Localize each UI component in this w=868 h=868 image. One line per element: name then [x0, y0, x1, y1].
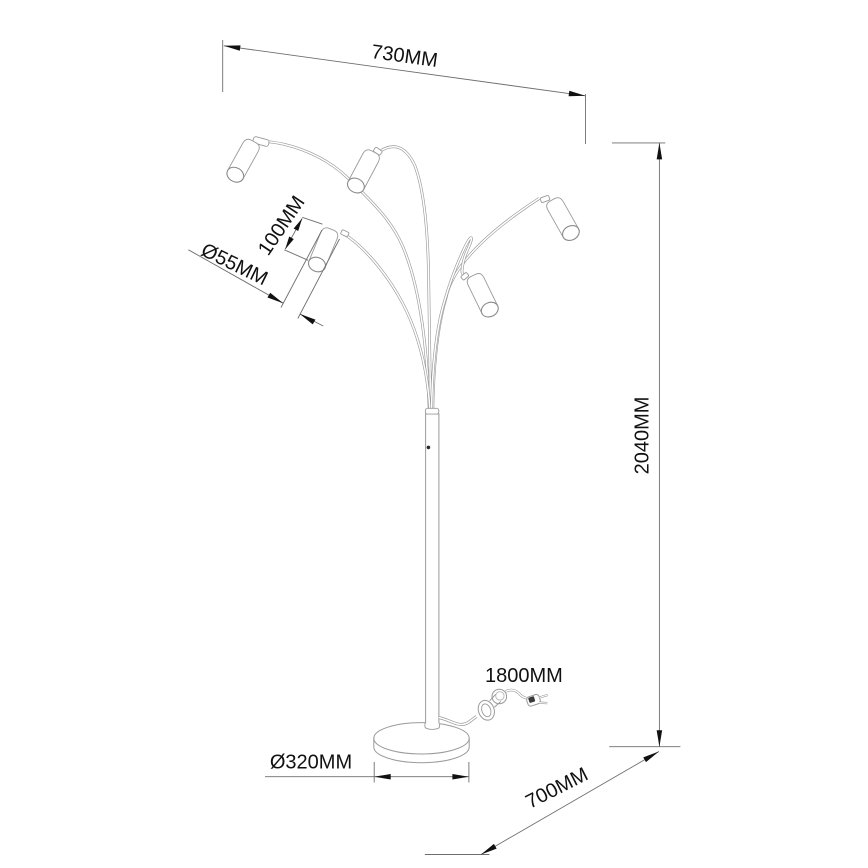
- svg-text:Ø320MM: Ø320MM: [270, 752, 352, 774]
- svg-text:2040MM: 2040MM: [632, 397, 654, 475]
- svg-text:1800MM: 1800MM: [485, 665, 563, 687]
